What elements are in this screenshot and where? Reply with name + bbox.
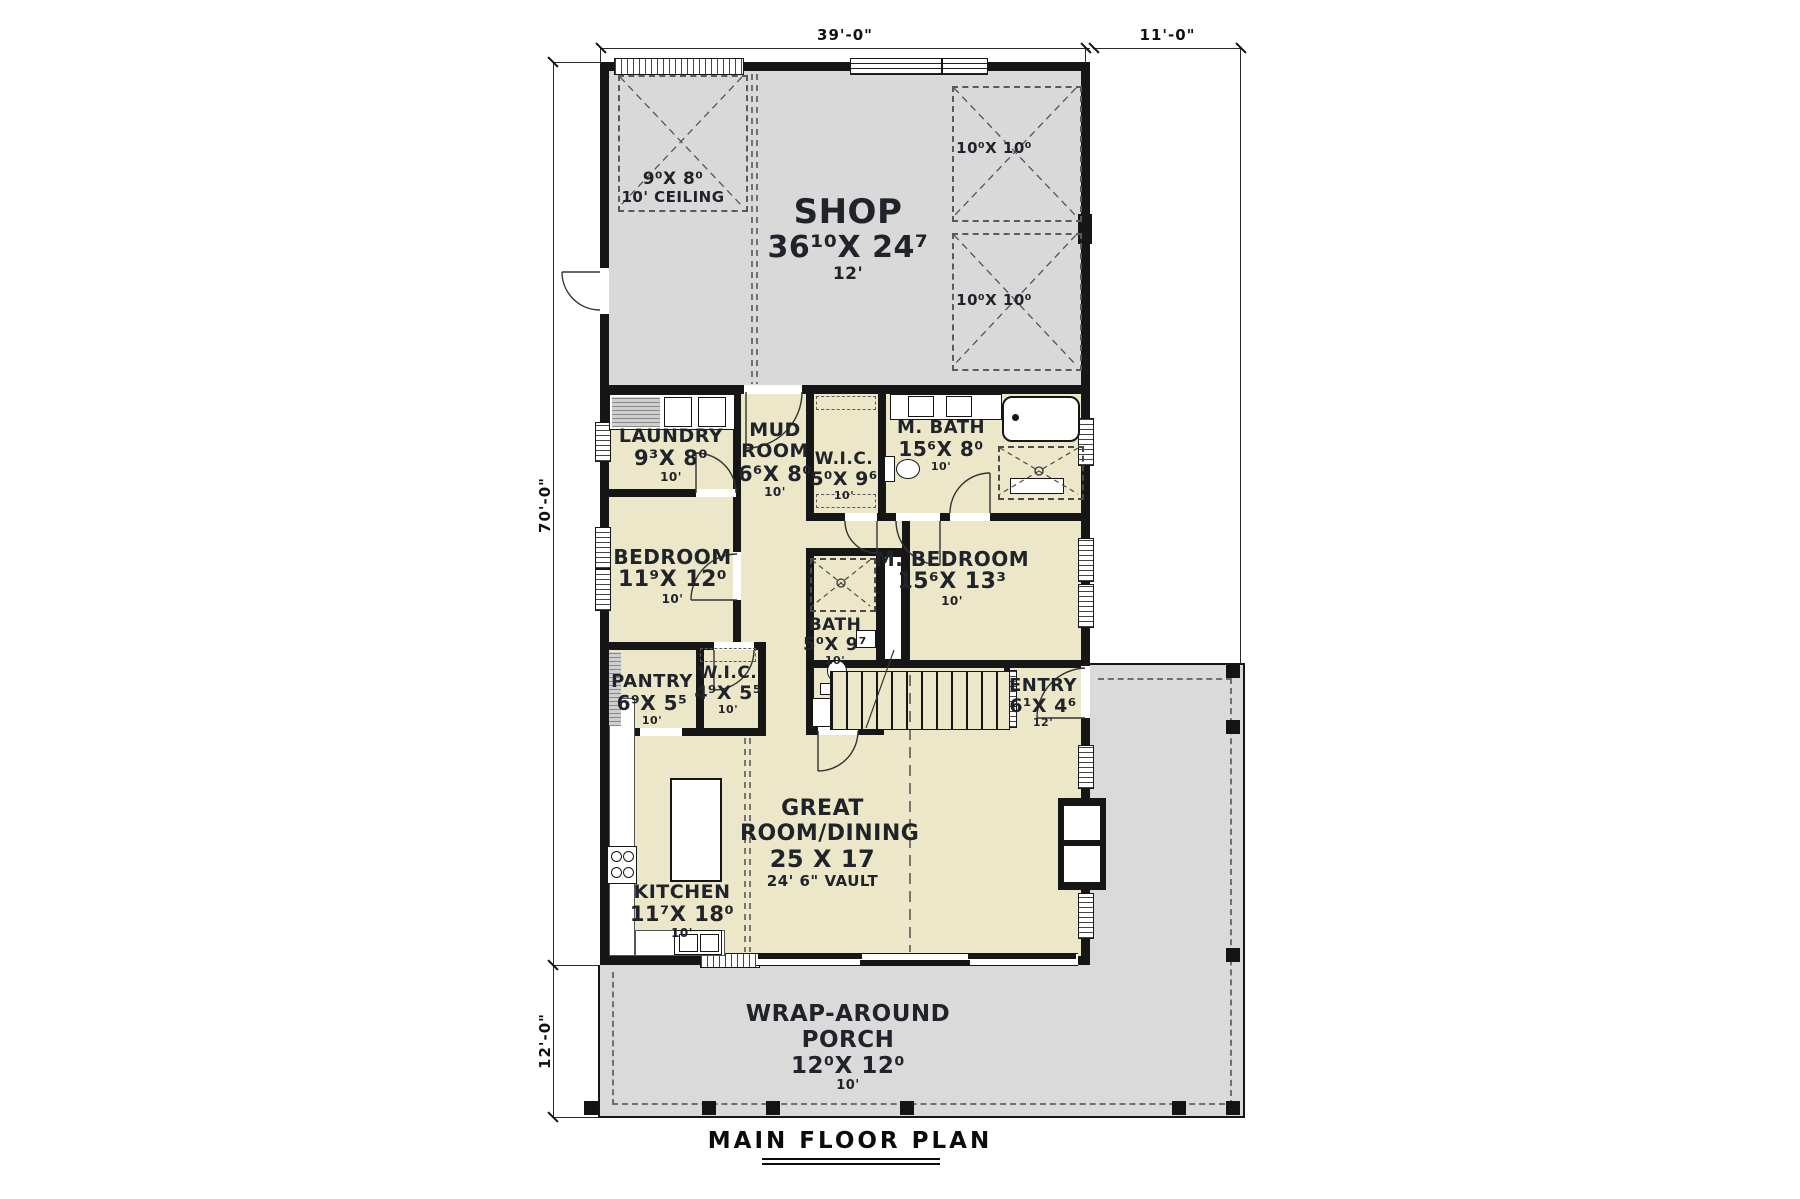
burner (623, 867, 634, 878)
laundry-label: LAUNDRY 9³X 8⁰ 10' (602, 426, 740, 484)
room-name: KITCHEN (612, 882, 752, 903)
patio-slider-panel (758, 954, 862, 959)
shop-mezzanine-label: 10⁰X 10⁰ (952, 292, 1036, 309)
dim-label-top-main: 39'-0" (760, 26, 930, 44)
dim-label-left-main: 70'-0" (536, 455, 554, 555)
porch-post (702, 1101, 716, 1115)
room-ceiling: 10' (872, 595, 1032, 608)
porch-post (584, 1101, 598, 1115)
entry-label: ENTRY 6¹X 4⁶ 12' (1000, 676, 1086, 730)
room-size: 15⁶X 13³ (872, 570, 1032, 595)
mezzanine-note: 10' CEILING (618, 189, 728, 206)
great-room-label: GREAT ROOM/DINING 25 X 17 24' 6" VAULT (740, 797, 905, 890)
bath-label: BATH 5⁰X 9⁷ 10' (800, 616, 870, 668)
dryer (698, 397, 726, 427)
extension-line (1240, 48, 1241, 664)
dim-label-left-lower: 12'-0" (536, 991, 554, 1091)
room-name: GREAT ROOM/DINING (740, 797, 905, 846)
room-name: M. BEDROOM (872, 548, 1032, 570)
room-ceiling: 10' (698, 1079, 998, 1094)
mbath-door-opening (950, 513, 990, 521)
pantry-label: PANTRY 6⁹X 5⁵ 10' (604, 672, 700, 727)
porch-edge-right (1243, 663, 1245, 1118)
room-size: 5⁰X 9⁶ (808, 469, 880, 490)
dim-label-top-right: 11'-0" (1110, 26, 1225, 44)
room-ceiling: 10' (800, 655, 870, 667)
room-size: 5⁰X 9⁷ (800, 635, 870, 655)
pantry-door-opening (640, 728, 682, 736)
porch-post (1226, 948, 1240, 962)
bedroom-label: BEDROOM 11⁹X 12⁰ 10' (600, 546, 745, 606)
wic-master-label: W.I.C. 5⁰X 9⁶ 10' (808, 450, 880, 503)
room-name: PANTRY (604, 672, 700, 692)
wall-exterior-left (600, 62, 609, 965)
laundry-door-opening (696, 489, 736, 497)
mezzanine-size: 10⁰X 10⁰ (952, 292, 1036, 309)
room-ceiling: 10' (602, 471, 740, 484)
room-size: 4⁹X 5⁵ (692, 683, 764, 704)
porch-post (900, 1101, 914, 1115)
porch-edge-bottom (598, 1116, 1245, 1118)
mbath-sink (946, 396, 972, 417)
room-ceiling: 10' (604, 715, 700, 727)
tub-drain (1012, 414, 1019, 421)
mbedroom-door-opening (896, 513, 940, 521)
room-name: W.I.C. (692, 664, 764, 683)
laundry-cabinet-hatch (612, 397, 660, 427)
porch-post (1226, 1101, 1240, 1115)
room-name: BEDROOM (600, 546, 745, 568)
room-name: BATH (800, 616, 870, 635)
plan-title: MAIN FLOOR PLAN (700, 1128, 1000, 1154)
floor-plan-canvas: SHOP 36¹⁰X 24⁷ 12' 9⁰X 8⁰ 10' CEILING 10… (0, 0, 1800, 1199)
mbath-shower-bench (1010, 478, 1064, 494)
mbedroom-window (1078, 538, 1094, 582)
greatroom-window-right (1078, 893, 1094, 939)
porch-post (1172, 1101, 1186, 1115)
wic-bedroom-shelf (700, 648, 756, 662)
room-size: 6⁶X 8⁰ (734, 463, 816, 487)
room-ceiling: 10' (808, 490, 880, 502)
porch-post (1226, 664, 1240, 678)
room-ceiling: 10' (612, 927, 752, 940)
room-name: LAUNDRY (602, 426, 740, 447)
room-size: 11⁹X 12⁰ (600, 568, 745, 593)
room-ceiling: 10' (876, 461, 1006, 473)
title-underline (762, 1158, 940, 1165)
room-name: WRAP-AROUND PORCH (698, 1002, 998, 1054)
wic-master-door-opening (845, 513, 877, 521)
porch-post (1226, 720, 1240, 734)
dim-line-top-right (1093, 48, 1240, 49)
porch-label: WRAP-AROUND PORCH 12⁰X 12⁰ 10' (698, 1002, 998, 1094)
room-size: 25 X 17 (740, 846, 905, 873)
shop-label: SHOP 36¹⁰X 24⁷ 12' (738, 193, 958, 284)
garage-door (942, 58, 988, 75)
mbath-sink (908, 396, 934, 417)
burner (611, 867, 622, 878)
wic-master-shelf (816, 396, 876, 410)
shop-window-band (614, 58, 744, 75)
extension-line (553, 62, 600, 63)
porch-post (766, 1101, 780, 1115)
extension-line (553, 1117, 598, 1118)
room-name: M. BATH (876, 418, 1006, 438)
room-ceiling: 10' (734, 486, 816, 499)
wic-bedroom-label: W.I.C. 4⁹X 5⁵ 10' (692, 664, 764, 717)
room-size: 9³X 8⁰ (602, 447, 740, 471)
room-size: 12⁰X 12⁰ (698, 1054, 998, 1080)
wall-shop-house-divider (600, 385, 1090, 394)
kitchen-island (670, 778, 722, 882)
greatroom-window-right (1078, 745, 1094, 789)
room-ceiling: 12' (1000, 717, 1086, 729)
mbedroom-window (1078, 584, 1094, 628)
burner (611, 851, 622, 862)
room-size: 6¹X 4⁶ (1000, 696, 1086, 717)
bath-shower (810, 558, 876, 612)
mud-room-label: MUD ROOM 6⁶X 8⁰ 10' (734, 420, 816, 499)
dim-line-top-main (600, 48, 1090, 49)
room-name: W.I.C. (808, 450, 880, 469)
shop-mezzanine-label: 9⁰X 8⁰ 10' CEILING (618, 170, 728, 206)
room-name: ENTRY (1000, 676, 1086, 696)
burner (623, 851, 634, 862)
room-ceiling: 10' (692, 704, 764, 716)
staircase (830, 671, 1010, 730)
patio-slider-panel (968, 954, 1076, 959)
room-name: MUD ROOM (734, 420, 816, 463)
mbedroom-label: M. BEDROOM 15⁶X 13³ 10' (872, 548, 1032, 608)
washer (664, 397, 692, 427)
room-ceiling: 24' 6" VAULT (740, 873, 905, 890)
porch-edge-left (598, 965, 600, 1118)
shop-side-door-opening (600, 268, 609, 314)
mbath-label: M. BATH 15⁶X 8⁰ 10' (876, 418, 1006, 473)
room-ceiling: 12' (738, 265, 958, 284)
shop-mezzanine-label: 10⁰X 10⁰ (952, 140, 1036, 157)
patio-slider-panel (860, 960, 970, 965)
room-size: 11⁷X 18⁰ (612, 903, 752, 927)
room-name: SHOP (738, 193, 958, 231)
mezzanine-size: 9⁰X 8⁰ (618, 170, 728, 189)
room-ceiling: 10' (600, 593, 745, 606)
room-size: 15⁶X 8⁰ (876, 438, 1006, 460)
room-size: 6⁹X 5⁵ (604, 692, 700, 714)
range-cooktop (607, 846, 637, 884)
garage-door (850, 58, 942, 75)
kitchen-label: KITCHEN 11⁷X 18⁰ 10' (612, 882, 752, 940)
mud-room-door-opening (744, 385, 802, 394)
mezzanine-size: 10⁰X 10⁰ (952, 140, 1036, 157)
fireplace-inner (1064, 846, 1100, 882)
porch-edge-top (1088, 663, 1245, 665)
fireplace-inner (1064, 806, 1100, 840)
room-size: 36¹⁰X 24⁷ (738, 231, 958, 265)
extension-line (553, 965, 598, 966)
